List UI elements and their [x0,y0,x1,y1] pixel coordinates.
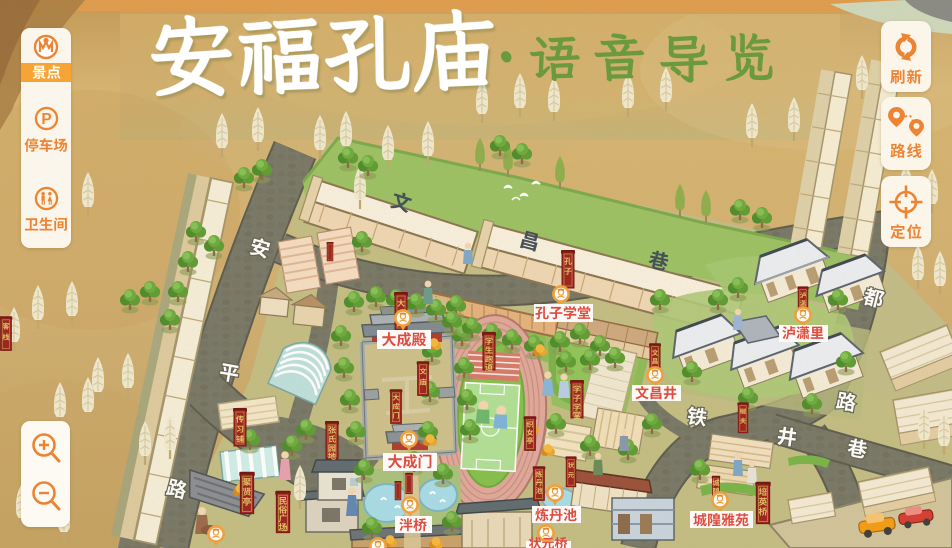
svg-text:P: P [41,111,51,128]
